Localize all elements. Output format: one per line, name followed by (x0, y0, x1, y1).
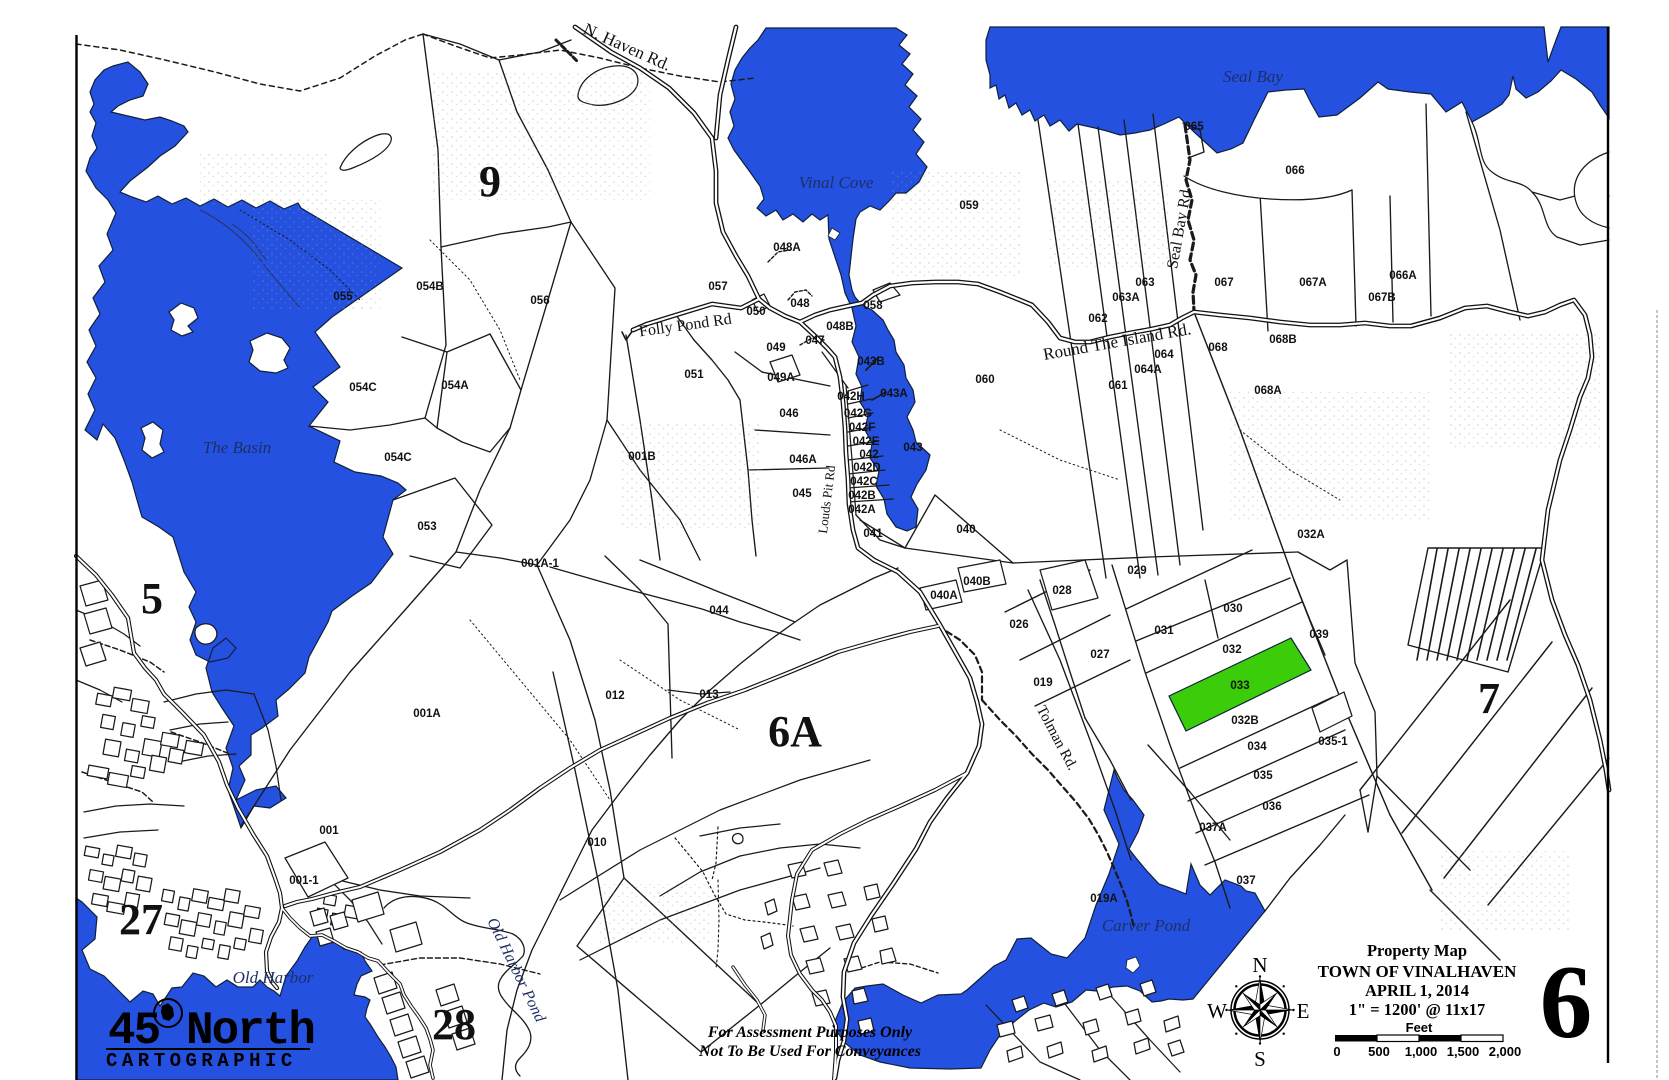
svg-text:053: 053 (417, 521, 436, 533)
svg-text:036: 036 (1262, 801, 1281, 813)
svg-text:Carver Pond: Carver Pond (1102, 916, 1191, 935)
svg-text:7: 7 (1478, 674, 1500, 723)
svg-text:042E: 042E (853, 436, 880, 448)
svg-text:040: 040 (956, 524, 975, 536)
svg-text:5: 5 (141, 574, 163, 623)
svg-text:054A: 054A (441, 380, 469, 392)
svg-text:012: 012 (605, 690, 624, 702)
svg-text:1,000: 1,000 (1405, 1044, 1438, 1059)
svg-text:037A: 037A (1199, 822, 1227, 834)
svg-text:TOWN OF VINALHAVEN: TOWN OF VINALHAVEN (1318, 962, 1517, 981)
svg-text:039: 039 (1309, 629, 1328, 641)
svg-text:6: 6 (1540, 943, 1593, 1060)
svg-text:057: 057 (708, 281, 727, 293)
svg-text:030: 030 (1223, 603, 1242, 615)
svg-text:Property Map: Property Map (1367, 941, 1467, 960)
svg-text:042G: 042G (844, 408, 872, 420)
svg-text:Old Harbor: Old Harbor (233, 968, 314, 987)
svg-text:063A: 063A (1112, 292, 1140, 304)
svg-text:001-1: 001-1 (289, 875, 319, 887)
svg-text:1,500: 1,500 (1447, 1044, 1480, 1059)
svg-text:037: 037 (1236, 875, 1255, 887)
svg-text:046: 046 (779, 408, 798, 420)
svg-text:040B: 040B (963, 576, 991, 588)
svg-text:029: 029 (1127, 565, 1146, 577)
svg-text:067B: 067B (1368, 292, 1396, 304)
svg-text:S: S (1254, 1047, 1266, 1071)
svg-text:034: 034 (1247, 741, 1267, 753)
svg-text:041: 041 (863, 528, 883, 540)
svg-text:056: 056 (530, 295, 549, 307)
svg-text:068A: 068A (1254, 385, 1282, 397)
svg-text:067A: 067A (1299, 277, 1327, 289)
svg-text:001A-1: 001A-1 (521, 558, 559, 570)
svg-text:019A: 019A (1090, 893, 1118, 905)
svg-text:064: 064 (1154, 349, 1174, 361)
svg-text:045: 045 (792, 488, 812, 500)
svg-text:N: N (1252, 953, 1267, 977)
svg-text:6A: 6A (768, 707, 822, 756)
svg-text:Feet: Feet (1406, 1020, 1433, 1035)
svg-text:044: 044 (709, 605, 729, 617)
svg-text:042B: 042B (848, 490, 876, 502)
svg-text:051: 051 (684, 369, 704, 381)
svg-text:049A: 049A (767, 372, 795, 384)
svg-text:9: 9 (479, 157, 501, 206)
svg-text:0: 0 (1333, 1044, 1340, 1059)
svg-text:054B: 054B (416, 281, 444, 293)
svg-text:042C: 042C (850, 476, 878, 488)
svg-text:040A: 040A (930, 590, 958, 602)
svg-text:048: 048 (790, 298, 810, 310)
svg-text:049: 049 (766, 342, 785, 354)
svg-text:28: 28 (432, 1000, 476, 1049)
svg-text:The Basin: The Basin (203, 438, 271, 457)
svg-text:064A: 064A (1134, 364, 1162, 376)
svg-text:013: 013 (699, 689, 718, 701)
svg-text:065: 065 (1184, 121, 1204, 133)
svg-text:047: 047 (805, 335, 824, 347)
svg-text:062: 062 (1088, 313, 1107, 325)
svg-text:067: 067 (1214, 277, 1233, 289)
svg-text:CARTOGRAPHIC: CARTOGRAPHIC (106, 1050, 297, 1072)
svg-text:500: 500 (1368, 1044, 1390, 1059)
svg-text:026: 026 (1009, 619, 1028, 631)
svg-text:001B: 001B (628, 451, 656, 463)
svg-text:042F: 042F (849, 422, 875, 434)
svg-text:Vinal Cove: Vinal Cove (799, 173, 874, 192)
svg-text:027: 027 (1090, 649, 1109, 661)
svg-text:061: 061 (1108, 380, 1128, 392)
svg-text:055: 055 (333, 291, 353, 303)
svg-text:046A: 046A (789, 454, 817, 466)
svg-text:001: 001 (319, 825, 339, 837)
svg-text:2,000: 2,000 (1489, 1044, 1522, 1059)
svg-text:001A: 001A (413, 708, 441, 720)
svg-text:059: 059 (959, 200, 978, 212)
svg-text:27: 27 (119, 895, 163, 944)
svg-text:043: 043 (903, 442, 922, 454)
svg-text:035: 035 (1253, 770, 1273, 782)
svg-text:W: W (1207, 999, 1227, 1023)
svg-text:032: 032 (1222, 644, 1241, 656)
svg-text:060: 060 (975, 374, 994, 386)
svg-text:042: 042 (859, 449, 878, 461)
svg-text:058: 058 (863, 300, 883, 312)
svg-text:E: E (1297, 999, 1310, 1023)
svg-text:033: 033 (1230, 680, 1249, 692)
svg-text:APRIL 1, 2014: APRIL 1, 2014 (1365, 981, 1469, 1000)
svg-text:1" = 1200' @ 11x17: 1" = 1200' @ 11x17 (1349, 1000, 1486, 1019)
svg-text:Seal Bay: Seal Bay (1223, 67, 1283, 86)
svg-text:068B: 068B (1269, 334, 1297, 346)
svg-text:066: 066 (1285, 165, 1304, 177)
svg-text:068: 068 (1208, 342, 1228, 354)
svg-text:042A: 042A (848, 504, 876, 516)
svg-text:035-1: 035-1 (1318, 736, 1348, 748)
svg-text:032B: 032B (1231, 715, 1259, 727)
svg-text:Not To Be Used For Conveyances: Not To Be Used For Conveyances (698, 1043, 921, 1060)
svg-text:028: 028 (1052, 585, 1072, 597)
svg-text:010: 010 (587, 837, 606, 849)
svg-text:043A: 043A (880, 388, 908, 400)
svg-text:063: 063 (1135, 277, 1154, 289)
svg-text:042D: 042D (853, 462, 881, 474)
svg-text:048B: 048B (826, 321, 854, 333)
svg-text:054C: 054C (349, 382, 377, 394)
svg-text:066A: 066A (1389, 270, 1417, 282)
svg-text:019: 019 (1033, 677, 1052, 689)
svg-text:032A: 032A (1297, 529, 1325, 541)
svg-text:043B: 043B (857, 356, 885, 368)
svg-text:031: 031 (1154, 625, 1174, 637)
svg-text:048A: 048A (773, 242, 801, 254)
svg-text:For Assessment Purposes Only: For Assessment Purposes Only (707, 1024, 913, 1041)
svg-text:054C: 054C (384, 452, 412, 464)
svg-text:042H: 042H (837, 391, 865, 403)
svg-text:050: 050 (746, 306, 765, 318)
